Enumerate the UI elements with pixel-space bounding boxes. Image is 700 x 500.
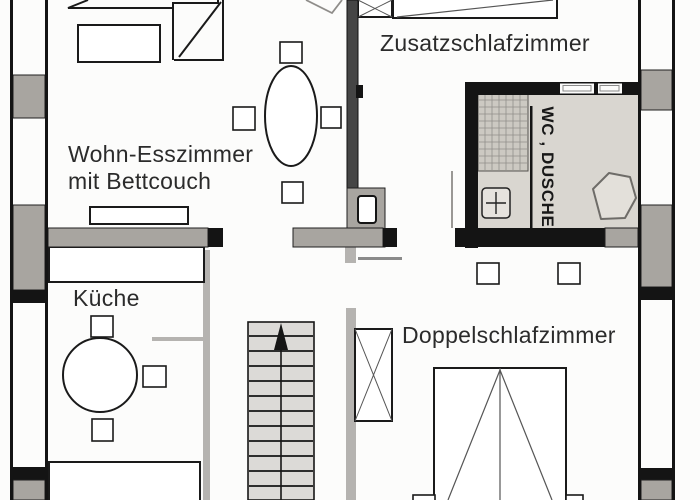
- kitchen-table: [63, 338, 137, 412]
- stairs: [248, 322, 314, 500]
- wall-cap-left: [208, 228, 223, 247]
- shower-tiles: [478, 93, 528, 171]
- extra-bedroom-bed: [393, 0, 557, 18]
- wardrobe: [355, 329, 392, 421]
- kitchen-partition: [203, 250, 210, 500]
- kitchen-counter: [49, 247, 204, 282]
- double-bed: [413, 368, 583, 500]
- kitchen-counter-lower: [49, 462, 200, 500]
- door-swing: [306, 0, 342, 13]
- living-room-label-line1: Wohn-Esszimmer: [68, 141, 253, 167]
- wall-living-kitchen: [48, 228, 208, 247]
- door-hinge-block: [356, 85, 363, 98]
- floorplan-svg: Wohn-Esszimmer mit Bettcouch Küche Zusat…: [0, 0, 700, 500]
- sideboard: [78, 25, 160, 62]
- bathroom-label-rule: [530, 106, 533, 228]
- nightstand-right: [558, 263, 580, 284]
- dining-chair-right: [321, 107, 341, 128]
- extra-bedroom-label: Zusatzschlafzimmer: [380, 30, 590, 56]
- sideboard-low: [90, 207, 188, 224]
- duct-shaft: [358, 196, 376, 223]
- wall-cap-right: [383, 228, 397, 247]
- hall-partition-stub: [345, 247, 356, 263]
- floor-plan: Wohn-Esszimmer mit Bettcouch Küche Zusat…: [0, 0, 700, 500]
- kitchen-chair-bottom: [92, 419, 113, 441]
- dining-chair-left: [233, 107, 255, 130]
- bathroom-label: WC , DUSCHE: [538, 107, 557, 228]
- bathroom-door: [563, 86, 591, 92]
- exterior-wall-left: [10, 0, 48, 500]
- nightstand-left: [477, 263, 499, 284]
- kitchen-chair-top: [91, 316, 113, 337]
- exterior-wall-right: [638, 0, 675, 500]
- dining-chair-bottom: [282, 182, 303, 203]
- sink: [482, 188, 510, 218]
- hall-door-leaf: [358, 257, 402, 260]
- wall-living-hall: [293, 228, 383, 247]
- dining-chair-top: [280, 42, 302, 63]
- living-room-label-line2: mit Bettcouch: [68, 168, 211, 194]
- dining-table: [265, 66, 317, 166]
- kitchen-label: Küche: [73, 285, 140, 311]
- kitchen-partition-stub: [152, 337, 204, 341]
- kitchen-chair-right: [143, 366, 166, 387]
- double-bedroom-label: Doppelschlafzimmer: [402, 322, 616, 348]
- extra-bedroom-nightstand: [358, 0, 392, 17]
